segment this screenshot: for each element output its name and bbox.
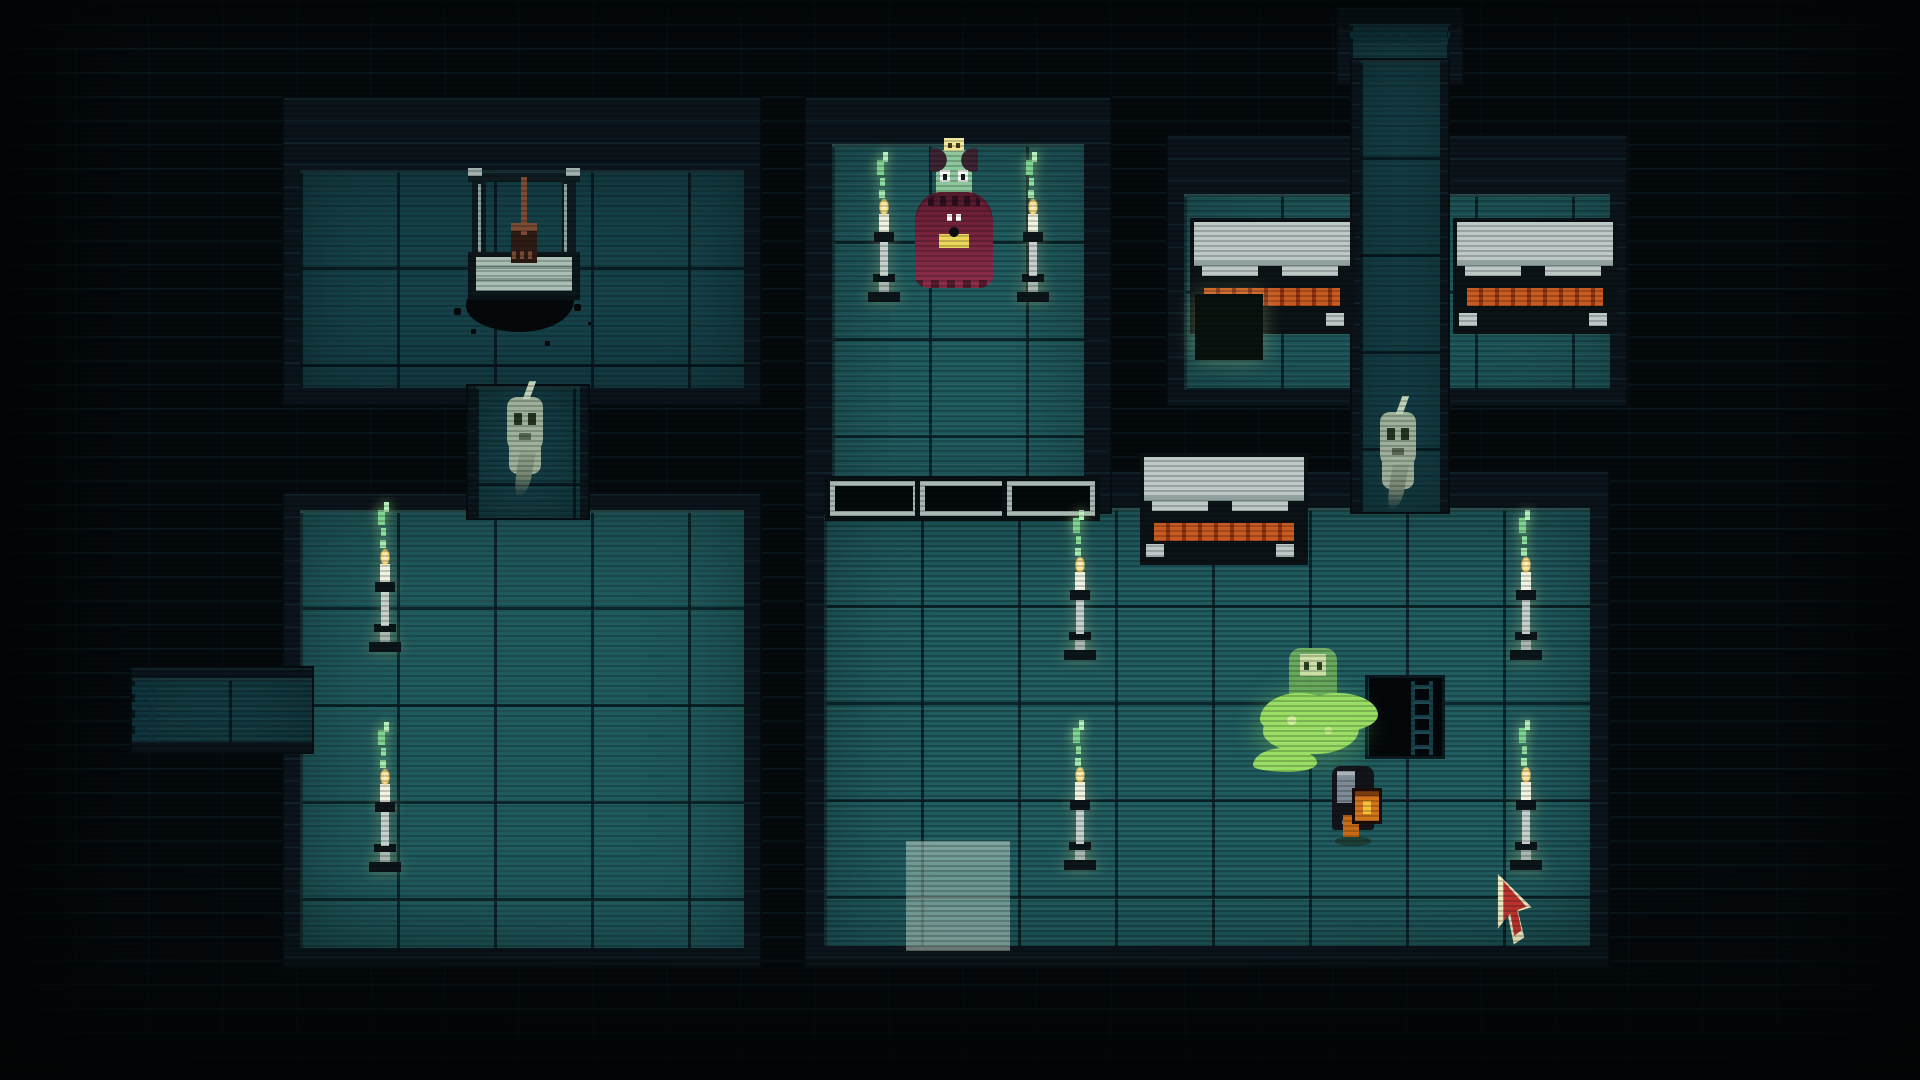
wall-slot-1[interactable] xyxy=(830,481,918,516)
well-stone-base xyxy=(470,252,578,296)
corridor-west-stub-floor[interactable] xyxy=(132,678,312,742)
candle-west-room-north[interactable] xyxy=(365,502,405,652)
wall-slot-2[interactable] xyxy=(920,481,1008,516)
coffin-right[interactable] xyxy=(1453,218,1617,334)
wall-skull-bottom-left-room[interactable] xyxy=(402,472,452,522)
ghost-north-corridor[interactable] xyxy=(1373,400,1423,510)
player-knight[interactable] xyxy=(1326,766,1380,846)
candle-big-room-northeast[interactable] xyxy=(1506,510,1546,660)
floor-pit[interactable] xyxy=(1365,675,1445,759)
wall-skull-big-room-east[interactable] xyxy=(1570,472,1620,522)
candle-big-room-southeast[interactable] xyxy=(1506,720,1546,870)
corridor-west-stub-walls xyxy=(132,668,312,752)
candle-altar-right[interactable] xyxy=(1013,152,1053,302)
coffin-center[interactable] xyxy=(1140,453,1308,565)
stone-well[interactable] xyxy=(468,168,580,298)
candle-big-room-southwest[interactable] xyxy=(1060,720,1100,870)
slime-ghost[interactable] xyxy=(1263,648,1359,760)
priestess-npc[interactable] xyxy=(915,138,993,288)
floor-skull-coffin-room[interactable] xyxy=(1203,300,1253,350)
game-viewport xyxy=(0,0,1920,1080)
wall-skull-top-left[interactable] xyxy=(300,126,350,180)
tile-highlight xyxy=(906,841,1010,951)
candle-altar-left[interactable] xyxy=(864,152,904,302)
ghost-west-corridor[interactable] xyxy=(500,385,550,497)
room-bottom-left-walls xyxy=(284,494,760,966)
candle-big-room-northwest[interactable] xyxy=(1060,510,1100,660)
candle-west-room-south[interactable] xyxy=(365,722,405,872)
